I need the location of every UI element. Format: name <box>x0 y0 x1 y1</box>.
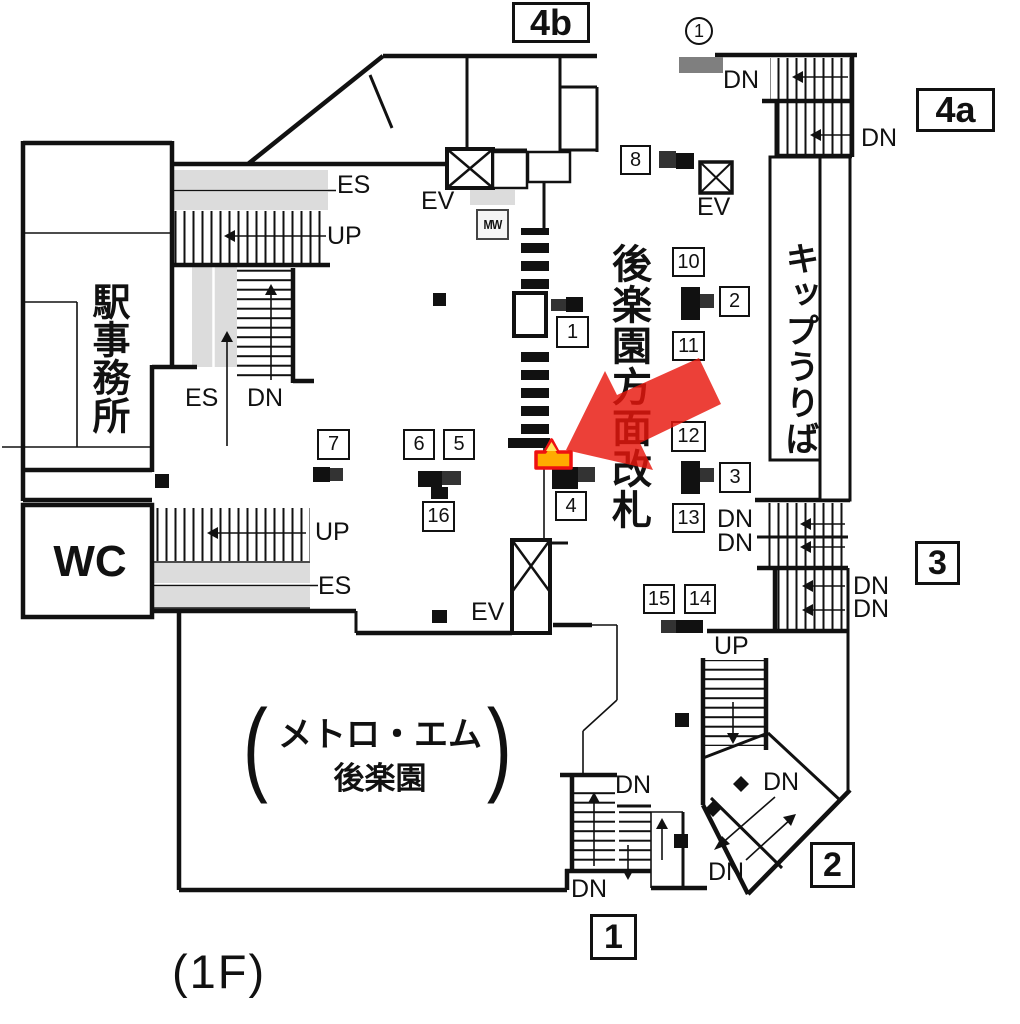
sign-box-10: 10 <box>672 247 705 277</box>
metro-paren-close: ) <box>487 692 512 802</box>
wc-label: WC <box>30 540 150 584</box>
sign-box-4: 4 <box>555 491 587 521</box>
stairs-west-treads <box>237 267 293 381</box>
dn-label-northeast-mid: DN <box>861 126 897 151</box>
up-label-northwest: UP <box>327 224 362 249</box>
dn-label-east-4: DN <box>853 597 889 622</box>
sign-box-5: 5 <box>443 429 475 460</box>
stairs-east-hatch-lower <box>777 570 848 630</box>
metro-paren-open: ( <box>243 692 268 802</box>
gray-pad-under-elevator <box>470 190 515 205</box>
sign-box-12: 12 <box>671 421 706 452</box>
stairs-northeast-hatch-upper <box>770 58 852 100</box>
elevator-north-center <box>447 149 493 188</box>
sign-box-7: 7 <box>317 429 350 460</box>
exit-4a-badge: 4a <box>916 88 995 132</box>
exit-1-badge: 1 <box>590 914 637 960</box>
ev-label-north-center: EV <box>421 189 454 214</box>
metro-korakuen-label: 後楽園 <box>272 757 488 793</box>
stairs-northwest-hatch <box>174 211 324 264</box>
ticket-office-column-right <box>820 157 850 500</box>
sign-box-8: 8 <box>620 145 651 175</box>
kiosk-box-1 <box>493 152 527 188</box>
ticket-office-label: キップうりば <box>782 241 816 457</box>
gate-machine-box <box>514 293 546 336</box>
mw-label: MW <box>479 210 505 239</box>
station-floor-map: 4b 4a 3 2 1 1 1 2 3 4 5 6 7 8 10 11 12 1… <box>0 0 1020 1024</box>
floor-level-label: (1F) <box>172 948 266 995</box>
dn-label-south-bottom: DN <box>571 877 607 902</box>
sign-box-14: 14 <box>684 584 716 614</box>
ev-label-south: EV <box>471 600 504 625</box>
exit-2-badge: 2 <box>810 842 855 888</box>
es-label-northwest: ES <box>337 173 370 198</box>
dn-label-east-2: DN <box>717 531 753 556</box>
es-label-west: ES <box>185 386 218 411</box>
stairs-wc-hatch <box>152 508 310 561</box>
exit-4b-badge: 4b <box>512 2 590 43</box>
elevator-northeast <box>700 162 732 193</box>
sign-box-11: 11 <box>672 331 705 361</box>
walls-northwest <box>23 56 597 501</box>
dn-label-south-stair: DN <box>615 773 651 798</box>
up-label-wc: UP <box>315 520 350 545</box>
stairs-northeast-hatch-lower <box>776 103 852 155</box>
floorplan-canvas <box>0 0 1020 1024</box>
sign-box-2: 2 <box>719 286 750 317</box>
gate-direction-label: 後楽園方面改札 <box>608 243 648 530</box>
dn-label-corridor-upper: DN <box>763 770 799 795</box>
up-label-southeast: UP <box>714 634 749 659</box>
dn-label-corridor-lower: DN <box>708 860 744 885</box>
dn-label-northeast-top: DN <box>723 68 759 93</box>
sign-box-13: 13 <box>672 503 705 533</box>
sign-box-6: 6 <box>403 429 435 460</box>
dn-label-west: DN <box>247 386 283 411</box>
kiosk-box-2 <box>528 152 570 182</box>
sign-box-1: 1 <box>556 316 589 348</box>
ev-label-northeast: EV <box>697 195 730 220</box>
circled-number-1: 1 <box>685 17 713 45</box>
stairs-south-treads-2 <box>619 808 651 868</box>
metro-m-label: メトロ・エム <box>272 712 488 750</box>
sign-box-16: 16 <box>422 501 455 532</box>
es-label-wc: ES <box>318 574 351 599</box>
exit-3-badge: 3 <box>915 541 960 585</box>
elevator-south <box>512 540 550 633</box>
stairs-east-hatch-upper <box>762 503 848 567</box>
sign-box-15: 15 <box>643 584 675 614</box>
station-office-label: 駅事務所 <box>88 282 126 434</box>
sign-box-3: 3 <box>719 462 751 493</box>
